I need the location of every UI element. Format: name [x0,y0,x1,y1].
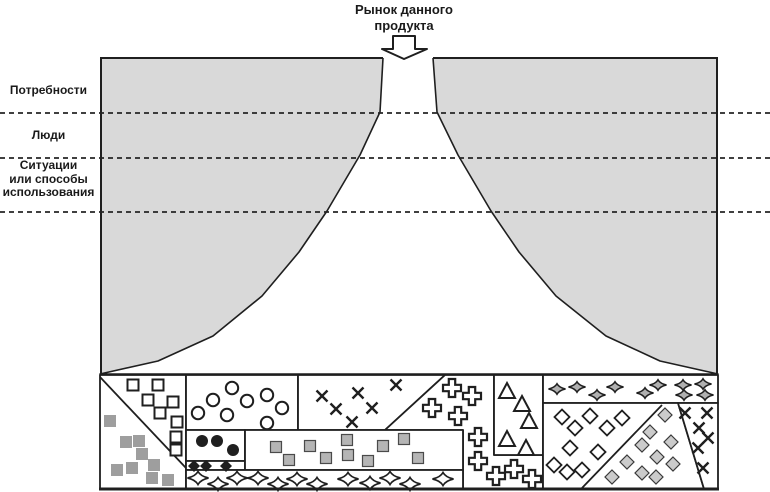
square-open-icon [155,408,166,419]
circle-open-icon [221,409,233,421]
square-mid-gray-icon [343,450,354,461]
square-gray-icon [133,435,145,447]
square-gray-icon [120,436,132,448]
axis-label-needs: Потребности [0,84,97,98]
circle-black-icon [211,435,223,447]
axis-label-people: Люди [0,129,97,143]
square-mid-gray-icon [321,453,332,464]
circle-black-icon [227,444,239,456]
square-gray-icon [146,472,158,484]
market-inflow-arrow-icon [382,36,427,59]
circle-black-icon [196,435,208,447]
circle-open-icon [241,395,253,407]
diagram-canvas [0,0,770,492]
market-funnel-diagram: Рынок данного продукта Потребности Люди … [0,0,770,492]
segment-stars-bottom [186,470,463,489]
square-gray-icon [136,448,148,460]
square-mid-gray-icon [363,456,374,467]
diagram-title-line2: продукта [304,18,504,34]
square-mid-gray-icon [271,442,282,453]
segment-stars-top [543,375,718,403]
square-gray-icon [126,462,138,474]
circle-open-icon [207,394,219,406]
axis-label-situations: Ситуации или способы использования [0,159,97,200]
circle-open-icon [192,407,204,419]
square-gray-icon [104,415,116,427]
circle-open-icon [261,389,273,401]
square-open-icon [171,432,182,443]
square-mid-gray-icon [305,441,316,452]
square-open-icon [153,380,164,391]
square-open-icon [172,417,183,428]
diagram-title-line1: Рынок данного [304,2,504,18]
square-open-icon [171,445,182,456]
square-mid-gray-icon [342,435,353,446]
diagram-title: Рынок данного продукта [304,2,504,34]
square-gray-icon [162,474,174,486]
square-mid-gray-icon [413,453,424,464]
square-gray-icon [111,464,123,476]
circle-open-icon [276,402,288,414]
circle-open-icon [226,382,238,394]
square-gray-icon [148,459,160,471]
square-mid-gray-icon [378,441,389,452]
square-open-icon [168,397,179,408]
square-mid-gray-icon [399,434,410,445]
square-open-icon [128,380,139,391]
circle-open-icon [261,417,273,429]
square-mid-gray-icon [284,455,295,466]
square-open-icon [143,395,154,406]
